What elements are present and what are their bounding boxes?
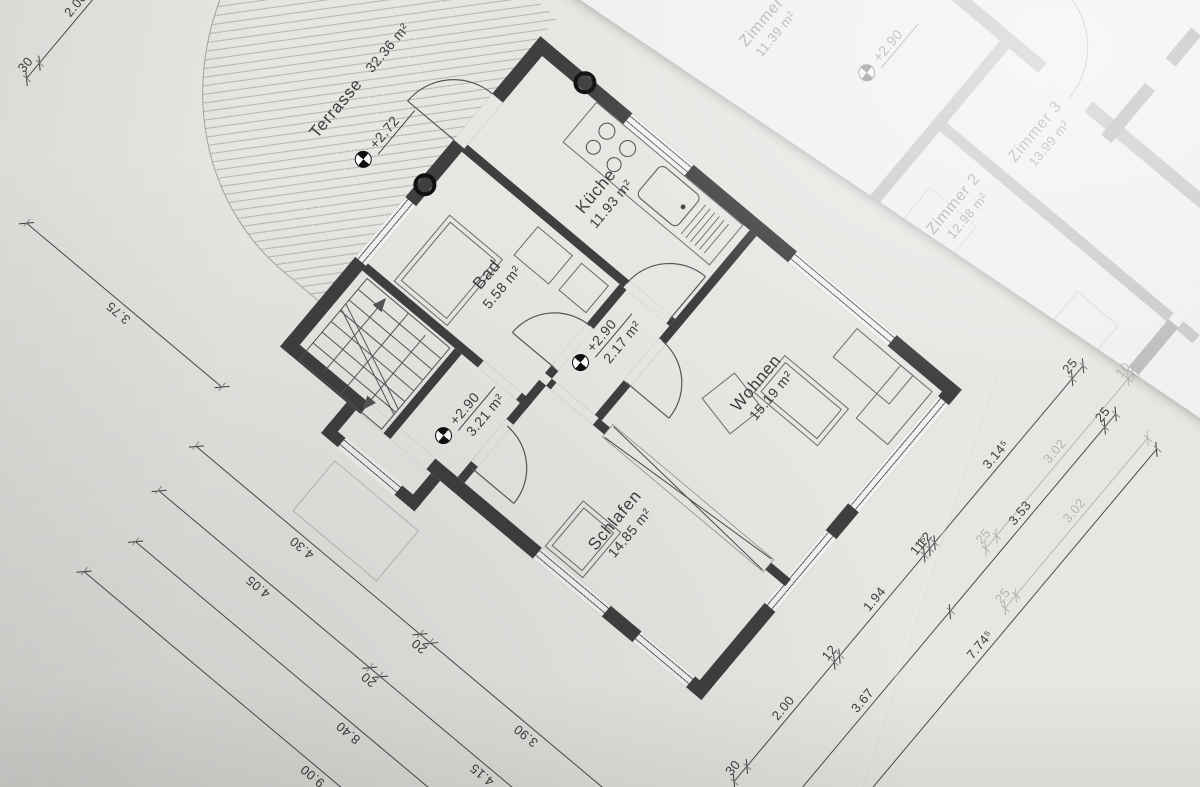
kitchen-door-arc — [627, 241, 706, 320]
schlafen-door-leaf — [472, 468, 514, 503]
schlafen-door-arc — [472, 426, 549, 503]
staircase — [299, 279, 450, 430]
stair-arrow-head — [360, 396, 375, 412]
stair-arrow-head — [374, 296, 389, 312]
wohnen-door-leaf — [627, 383, 669, 418]
plan-linework — [0, 0, 1200, 787]
blueprint-photo: Zimmer 11.39 m² Zimmer 2 12.98 m² Zimmer… — [0, 0, 1200, 787]
wohnen-door-arc — [627, 341, 704, 418]
bad-door-leaf — [512, 333, 554, 368]
entry-door-arc — [408, 55, 493, 140]
entry-door-leaf — [408, 101, 454, 140]
kitchen-sink — [635, 164, 730, 253]
floor-plan-sheet: Zimmer 11.39 m² Zimmer 2 12.98 m² Zimmer… — [0, 0, 1200, 787]
kitchen-door-leaf — [670, 277, 706, 320]
